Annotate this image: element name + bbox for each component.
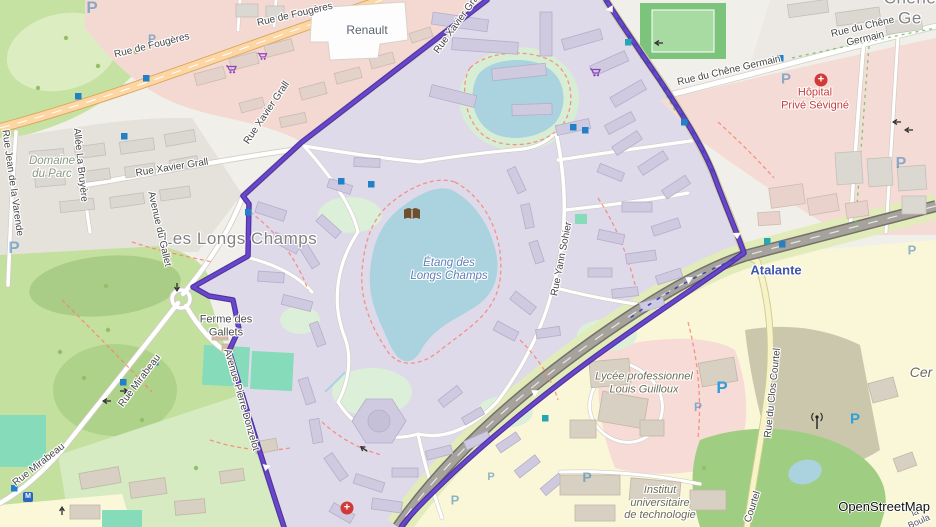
hospital-icon: + (815, 74, 828, 87)
hospital-icon: + (341, 502, 354, 515)
osm-attribution-link[interactable]: OpenStreetMap (838, 499, 930, 514)
metro-station-icon: M (23, 492, 33, 502)
map-tiles (0, 0, 936, 527)
map-canvas[interactable]: Rue de Fougères Rue de Fougères Renault … (0, 0, 936, 527)
